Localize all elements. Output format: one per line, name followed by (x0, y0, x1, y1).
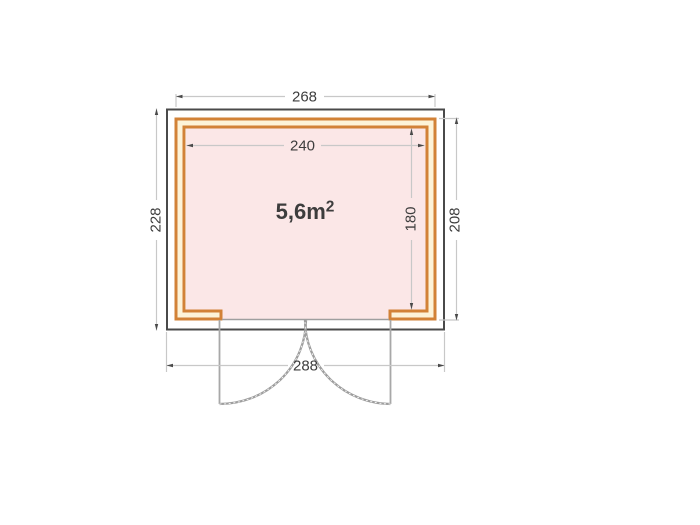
svg-text:208: 208 (447, 207, 464, 232)
svg-text:228: 228 (148, 207, 165, 232)
svg-text:288: 288 (293, 358, 318, 375)
svg-text:268: 268 (292, 89, 317, 106)
svg-text:180: 180 (403, 206, 420, 231)
svg-text:240: 240 (290, 138, 315, 155)
svg-text:5,6m2: 5,6m2 (276, 199, 335, 225)
